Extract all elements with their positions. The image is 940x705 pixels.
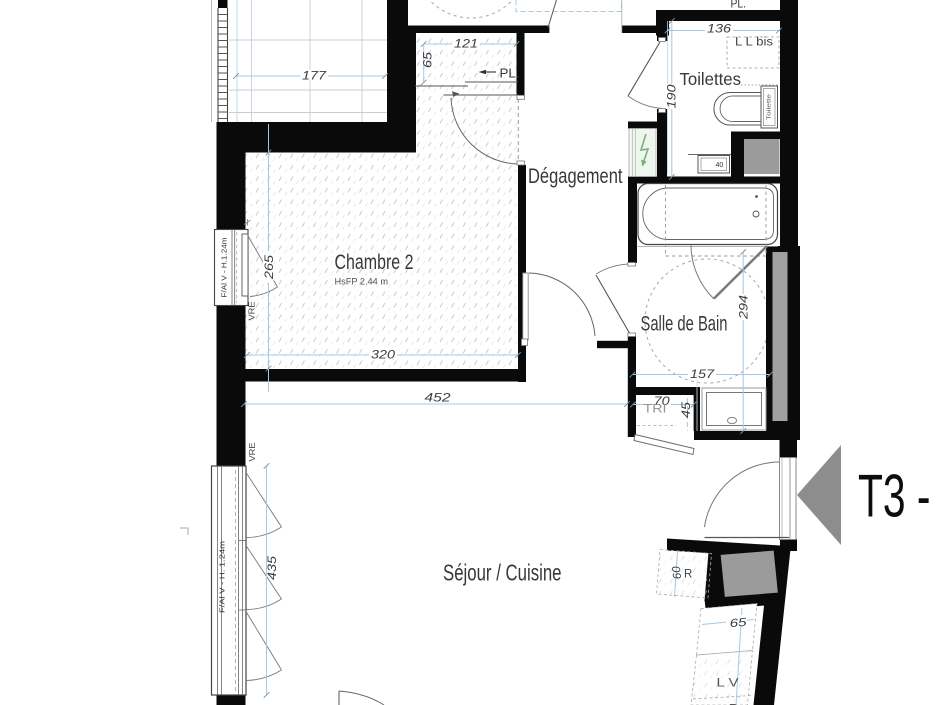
svg-text:F/Al V - H. 1.24m: F/Al V - H. 1.24m <box>218 541 227 613</box>
svg-text:60: 60 <box>671 565 685 580</box>
svg-text:VRE: VRE <box>248 302 257 321</box>
svg-text:Chambre 2: Chambre 2 <box>335 250 414 274</box>
svg-text:190: 190 <box>667 84 679 109</box>
svg-text:L L bis: L L bis <box>735 37 773 49</box>
svg-text:L V: L V <box>717 676 739 690</box>
svg-text:HsFP 2.44 m: HsFP 2.44 m <box>335 277 389 288</box>
svg-text:320: 320 <box>371 349 396 361</box>
svg-text:265: 265 <box>264 254 276 280</box>
svg-text:435: 435 <box>267 555 279 580</box>
svg-text:Toilettes: Toilettes <box>680 69 742 89</box>
svg-text:121: 121 <box>454 38 478 50</box>
svg-text:Séjour / Cuisine: Séjour / Cuisine <box>443 560 562 586</box>
svg-text:PL.: PL. <box>731 0 747 11</box>
svg-text:65: 65 <box>423 51 435 68</box>
svg-text:45: 45 <box>681 401 693 418</box>
svg-text:40: 40 <box>716 162 724 169</box>
svg-text:177: 177 <box>302 70 327 82</box>
svg-text:Dégagement: Dégagement <box>528 164 623 188</box>
svg-text:F/Al V - H.1.24m: F/Al V - H.1.24m <box>222 237 229 297</box>
svg-text:R: R <box>684 569 692 581</box>
svg-text:Salle de Bain: Salle de Bain <box>641 313 728 336</box>
svg-text:452: 452 <box>425 393 452 405</box>
svg-text:PL.: PL. <box>500 67 520 81</box>
svg-text:157: 157 <box>690 369 715 381</box>
svg-text:Toilette: Toilette <box>767 94 773 120</box>
svg-text:65: 65 <box>729 617 748 631</box>
svg-text:T3 -: T3 - <box>858 463 931 530</box>
svg-text:VRE: VRE <box>248 443 257 462</box>
svg-text:294: 294 <box>739 295 751 320</box>
svg-text:136: 136 <box>707 23 732 35</box>
svg-text:TRI: TRI <box>644 402 667 416</box>
